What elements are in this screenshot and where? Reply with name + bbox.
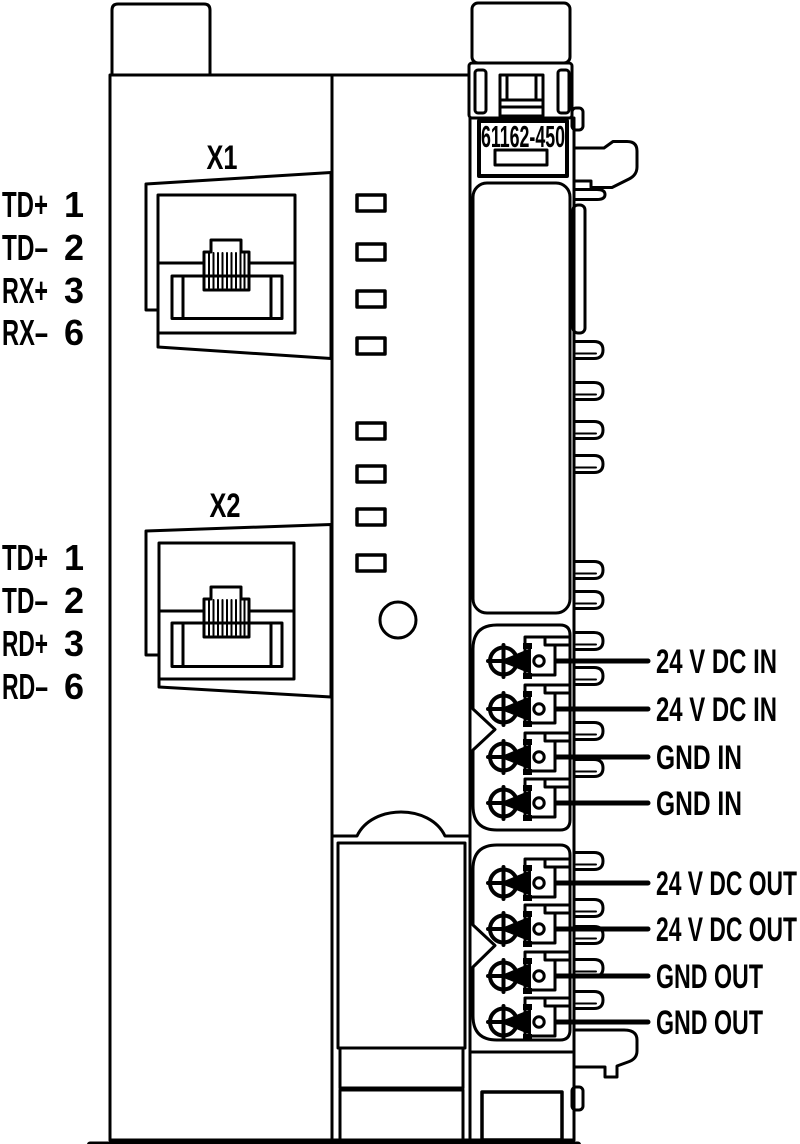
terminal-label-24vdc-out: 24 V DC OUT <box>656 911 797 949</box>
port-x1-title: X1 <box>207 139 238 177</box>
x1-pin-number: 1 <box>64 184 84 225</box>
x1-pin-number: 3 <box>64 270 84 311</box>
upper-right-panel <box>473 183 570 613</box>
x1-port-bezel <box>146 173 331 359</box>
ethernet-port-x1 <box>146 173 331 359</box>
terminal-label-gnd-out: GND OUT <box>656 958 763 996</box>
x2-contacts <box>204 587 249 637</box>
text-labels: X1 X2 61162-450 TD+ 1 TD– 2 RX+ 3 RX– 6 … <box>2 119 797 1042</box>
terminal-label-gnd-out: GND OUT <box>656 1004 763 1042</box>
lower-middle-panel <box>332 812 470 1140</box>
x2-pin-signal: RD– <box>2 666 48 707</box>
x1-pin-number: 2 <box>64 227 84 268</box>
terminal-label-24vdc-in: 24 V DC IN <box>656 643 777 681</box>
terminal-label-24vdc-in: 24 V DC IN <box>656 691 777 729</box>
ethernet-port-x2 <box>146 525 331 698</box>
x2-pin-signal: RD+ <box>2 623 48 664</box>
locking-slide-detail <box>500 75 543 107</box>
bottom-right-box <box>482 1092 562 1140</box>
x1-pin-signal: RX– <box>2 312 48 353</box>
power-terminal-labels: 24 V DC IN 24 V DC IN GND IN GND IN 24 V… <box>656 643 797 1042</box>
x1-pin-signal: TD+ <box>2 184 48 225</box>
x2-pin-number: 2 <box>64 580 84 621</box>
port-x2-title: X2 <box>210 487 241 525</box>
terminal-label-24vdc-out: 24 V DC OUT <box>656 865 797 903</box>
x2-pin-signal: TD+ <box>2 537 48 578</box>
din-hook-top-icon <box>574 142 637 188</box>
device-connection-diagram: X1 X2 61162-450 TD+ 1 TD– 2 RX+ 3 RX– 6 … <box>0 0 800 1144</box>
power-terminals <box>488 637 648 1040</box>
power-jumper-contacts <box>574 342 603 1009</box>
x1-pin-signal: TD– <box>2 227 48 268</box>
status-led-column <box>357 195 416 638</box>
diagram-canvas: X1 X2 61162-450 TD+ 1 TD– 2 RX+ 3 RX– 6 … <box>0 0 800 1144</box>
x2-pin-number: 3 <box>64 623 84 664</box>
x2-pin-number: 6 <box>64 666 84 707</box>
latch-tab-left <box>475 70 486 113</box>
lower-band-2 <box>340 1090 463 1140</box>
side-tab-small <box>574 190 605 200</box>
terminal-label-gnd-in: GND IN <box>656 739 742 777</box>
order-number: 61162-450 <box>481 119 565 154</box>
x2-pin-signal: TD– <box>2 580 48 621</box>
x1-pinout-labels: TD+ 1 TD– 2 RX+ 3 RX– 6 <box>2 184 84 353</box>
x1-pin-number: 6 <box>64 312 84 353</box>
din-hook-bottom-icon <box>574 1030 637 1077</box>
top-left-block <box>112 4 210 75</box>
housing-left-top-edge <box>110 75 469 1140</box>
terminal-label-gnd-in: GND IN <box>656 785 742 823</box>
latch-tab-right <box>558 70 569 113</box>
x1-pin-signal: RX+ <box>2 270 48 311</box>
x2-pin-number: 1 <box>64 537 84 578</box>
x1-contacts <box>204 240 249 290</box>
service-button-icon <box>380 602 416 638</box>
bus-connector-block <box>472 3 570 63</box>
x2-pinout-labels: TD+ 1 TD– 2 RD+ 3 RD– 6 <box>2 537 84 707</box>
panel-dome-edge <box>332 812 470 836</box>
address-selector-panel <box>338 843 465 1048</box>
lower-band-1 <box>340 1048 463 1088</box>
